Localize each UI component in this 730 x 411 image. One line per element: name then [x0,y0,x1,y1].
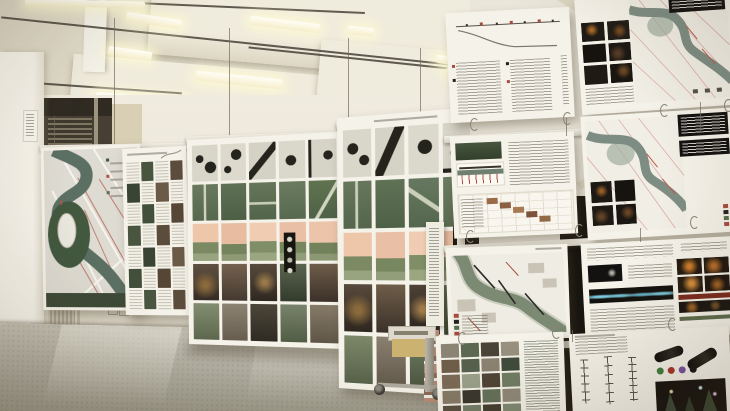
legend-text-column [456,61,503,115]
board-cell [375,126,404,176]
board-cell [344,335,373,384]
text-block [508,140,570,187]
photo-thumbnail-grid [126,160,185,309]
detail-note-text [628,263,673,279]
board-cell [310,305,338,344]
thumbnail-cell [126,162,139,182]
warm-night-tiles [676,256,730,293]
dot-strip-dots [284,232,296,273]
wall-column [0,52,44,337]
night-photo [584,65,608,85]
poster-fixture-spec [569,326,730,411]
poster-plan-board-1 [187,132,344,349]
dot [287,237,292,242]
partial-poster-edge [426,222,444,326]
legend-bullet [506,62,509,65]
plan-board-grid [192,138,339,343]
thumbnail-cell [143,268,156,287]
board-cell [192,184,218,221]
dot [287,258,292,263]
green-photo-strip [455,142,502,161]
rail-hook [575,224,584,237]
board-cell [344,284,373,332]
bench-glow-photo [589,285,674,303]
inventory-photo [443,406,461,411]
exhibition-room-photo [0,0,730,411]
warm-night-photo [677,276,703,293]
inventory-text-column [524,340,561,411]
lit-trees-photo [655,378,727,411]
dark-image-small [588,264,623,283]
board-cell [279,181,306,219]
inventory-photo [481,358,499,372]
detail-header-text [587,244,674,260]
thumbnail-cell [171,225,184,245]
paper-sign [23,110,39,142]
dot [287,268,292,273]
tree-silhouette [700,389,719,411]
gantt-row-labels [461,198,484,229]
hanging-wire [566,118,567,136]
caption-text [682,141,727,155]
legend-swatch [724,216,729,220]
night-photo-tiles [590,180,637,227]
floor-reflection [39,324,182,411]
hanging-wire [114,18,115,150]
poster-night-map-2 [580,107,730,240]
gantt-bar [539,215,550,221]
night-photo [614,180,636,202]
poster-photo-inventory [435,332,566,411]
black-dot-strip [284,232,296,272]
rail-hook [466,230,475,243]
board-cell [193,224,219,261]
legend-swatch [723,204,728,208]
thumbnail-cell [172,268,185,288]
section-poles [462,174,500,185]
rail-hook [458,332,467,345]
thumbnail-cell [128,226,141,245]
board-cell [220,183,246,221]
rail-hook [724,99,730,112]
poster-caption-block [679,138,730,157]
night-photo [609,63,633,83]
gantt-bar [513,207,524,213]
inventory-photo [482,389,500,403]
thumbnail-cell [157,225,170,245]
warm-night-photo [703,256,729,273]
thumbnail-cell [156,204,169,224]
legend-swatch [723,210,728,214]
inventory-photo [463,405,481,411]
thumbnail-cell [127,184,140,204]
color-dot [679,366,686,373]
inventory-photo [502,388,520,402]
vertical-caption [561,55,570,105]
board-cell [249,182,276,220]
sketch-curve [160,149,182,160]
gantt-bars [487,195,551,224]
warm-night-photo [676,258,702,275]
thumbnail-cell [144,290,157,309]
inventory-photo [442,375,460,389]
tray-slot [394,331,428,335]
poster-timeline-diagram [445,7,575,123]
legend-swatch [454,320,459,324]
rail-hook [552,326,561,339]
night-map-graphic [628,0,730,104]
color-sample-dots [657,366,697,375]
pole-diagram [604,356,615,404]
thumbnail-cell [129,269,142,288]
board-cell [192,145,218,183]
rail-hook [690,216,699,229]
thumbnail-cell [155,161,168,181]
board-cell [220,143,246,181]
poster-section-gantt [450,131,578,238]
poster-title-block [677,112,728,137]
poster-riverside-plan [445,244,570,342]
inventory-photo [501,341,519,355]
inventory-photo [462,374,480,388]
night-photo [608,41,632,61]
panoramic-night-strip [679,299,730,313]
hanging-wire [700,102,701,132]
dot [287,247,292,252]
poster-title-strip [374,115,437,122]
board-cell [343,129,371,178]
pole-diagram [628,357,638,401]
thumbnail-cell [170,182,183,202]
legend-bullet [507,80,510,83]
hanging-wire [420,48,421,120]
inventory-photo [482,373,500,387]
ceiling-beam [83,0,107,72]
board-cell [408,124,439,175]
rail-hook [470,118,479,131]
gantt-table [457,189,575,234]
board-cell [309,222,337,261]
night-photo-tiles [581,20,633,85]
board-cell [376,232,405,281]
plan-title-line [535,247,561,250]
rail-hook [668,318,677,331]
partial-poster-texture [429,228,439,318]
board-cell [310,263,338,301]
spec-header-text [575,336,628,355]
pole-diagram [580,359,590,403]
thumbnail-cell [141,183,154,203]
title-block-text [681,115,726,134]
rail-hook [563,112,572,125]
hanging-wire [640,228,641,242]
legend-bullet [453,79,456,82]
board-cell [375,179,404,228]
thumbnail-cell [142,204,155,224]
inventory-photo [461,343,479,357]
board-cell [278,140,305,179]
tree-silhouette [682,396,697,411]
board-cell [221,223,247,260]
rail-hook [660,104,669,117]
board-cell [280,304,307,342]
inventory-photo [441,359,459,373]
thumbnail-cell [143,247,156,266]
stand-pole [425,338,434,392]
sign-text-lines [26,114,34,136]
thumbnail-cell [173,290,186,310]
thumbnail-cell [142,226,155,246]
night-photo [592,204,614,226]
thumbnail-cell [129,290,142,309]
inventory-photo [501,357,519,371]
board-cell [309,138,337,177]
night-photo [615,203,637,225]
board-cell [250,263,277,301]
board-cell [251,304,278,342]
board-cell [309,180,337,219]
night-photo [582,43,606,63]
flashlight-fixture [653,344,685,363]
detail-header-text [681,241,727,252]
inventory-photo [502,373,520,387]
night-photo [590,181,612,203]
gantt-bar [500,202,511,208]
thumbnail-cell [157,268,170,287]
color-dot [657,367,664,374]
inventory-photo [503,404,521,411]
poster-night-map-1 [574,0,730,115]
poster-photo-index [122,146,190,316]
color-dot [668,367,675,374]
tree-silhouette [662,393,679,411]
inventory-photo [442,390,460,404]
inventory-photo [481,342,499,356]
board-cell [249,142,276,180]
thumbnail-cell [172,247,185,267]
thumbnail-cell [158,290,171,309]
thumbnail-cell [171,203,184,223]
timeline-graph [452,13,566,57]
thumbnail-cell [128,247,141,266]
thumbnail-cell [157,247,170,267]
legend-text-column [510,58,553,112]
gantt-bar [526,211,537,217]
night-photo [581,22,605,42]
board-cell [344,232,372,280]
inventory-photo [483,404,501,411]
plan-legend-text [462,315,489,336]
board-cell [193,264,219,301]
night-photo [606,20,630,40]
green-caption-bar [679,314,730,321]
thumbnail-cell [156,182,169,202]
board-cell [222,303,248,340]
gantt-bar [487,198,498,204]
legend-swatch [724,222,729,226]
hanging-wire [229,28,230,140]
hanging-wire [572,330,573,342]
legend-swatch [454,314,459,318]
warm-night-photo [704,274,730,291]
board-cell [343,180,371,228]
map-legend [723,204,729,226]
caster-wheel [374,384,385,395]
board-cell [250,223,277,261]
title-block-text [671,0,722,10]
thumbnail-cell [170,160,183,180]
color-dot [690,366,697,373]
section-drawing [456,161,505,187]
thumbnail-cell [141,162,154,182]
thumbnail-cell [127,205,140,225]
inventory-photo-grid [441,341,522,411]
board-cell [193,303,219,340]
legend-bullet [452,65,455,68]
inventory-photo [461,358,479,372]
inventory-photo [462,390,480,404]
board-cell [409,177,440,227]
board-cell [221,263,247,300]
tile-captions [585,86,634,105]
legend-swatch [454,326,459,330]
inventory-photo [441,343,459,357]
